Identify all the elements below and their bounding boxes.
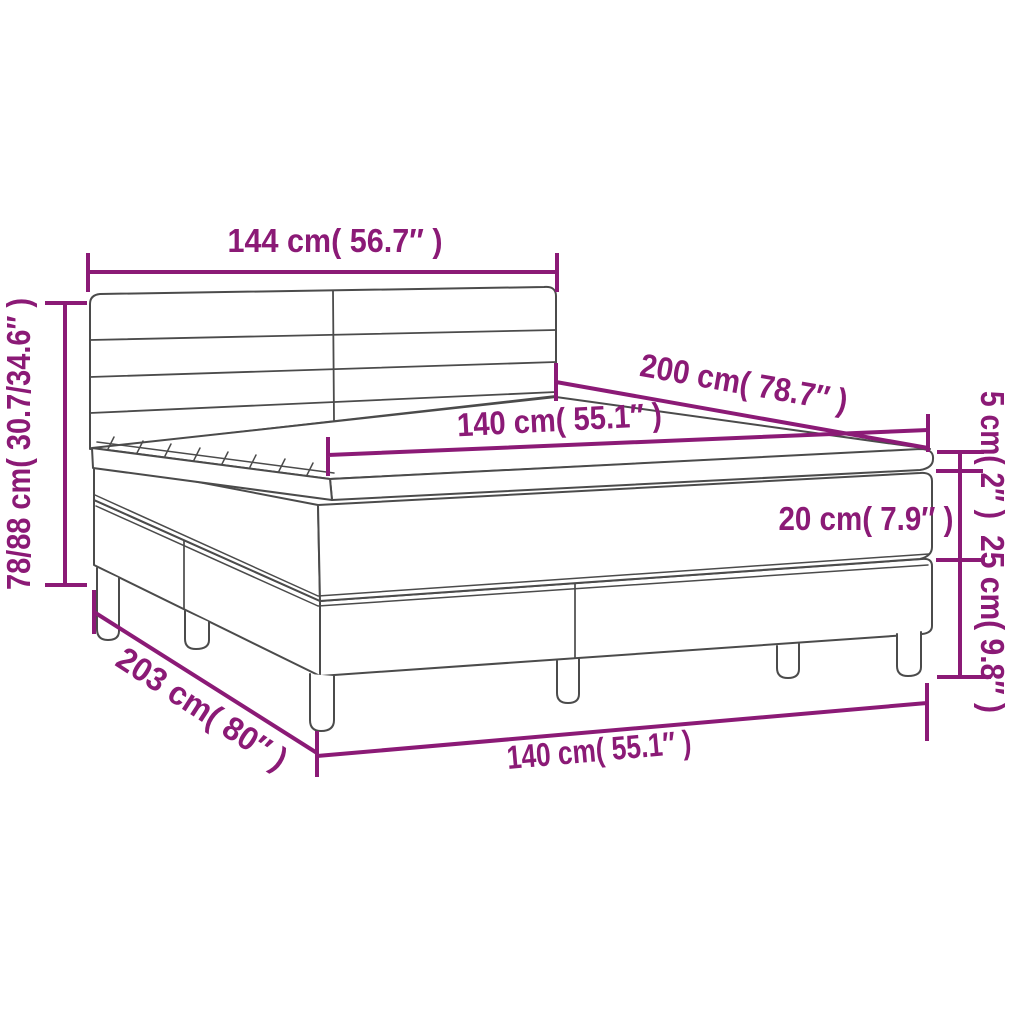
label-mattress-thickness: 20 cm( 7.9″ ) — [779, 500, 954, 537]
label-topper-thickness: 5 cm( 2″ ) — [974, 391, 1011, 519]
bed-dimension-diagram: 144 cm( 56.7″ ) 78/88 cm( 30.7/34.6″ ) 2… — [0, 0, 1024, 1024]
bed-leg — [310, 674, 334, 731]
label-bed-length: 200 cm( 78.7″ ) — [637, 346, 850, 419]
label-base-leg-height: 25 cm( 9.8″ ) — [974, 535, 1011, 713]
bed-leg — [97, 568, 119, 640]
label-frame-length: 203 cm( 80″ ) — [110, 639, 295, 777]
bed-leg — [897, 632, 921, 676]
label-base-width: 140 cm( 55.1″ ) — [505, 723, 693, 776]
diagram-canvas: 144 cm( 56.7″ ) 78/88 cm( 30.7/34.6″ ) 2… — [0, 0, 1024, 1024]
dim-line-height-range — [45, 303, 87, 585]
label-height-range: 78/88 cm( 30.7/34.6″ ) — [0, 298, 37, 590]
bed-leg — [557, 659, 579, 703]
bed-leg — [777, 644, 799, 678]
label-headboard-width: 144 cm( 56.7″ ) — [228, 222, 443, 259]
headboard-divider — [333, 291, 334, 420]
